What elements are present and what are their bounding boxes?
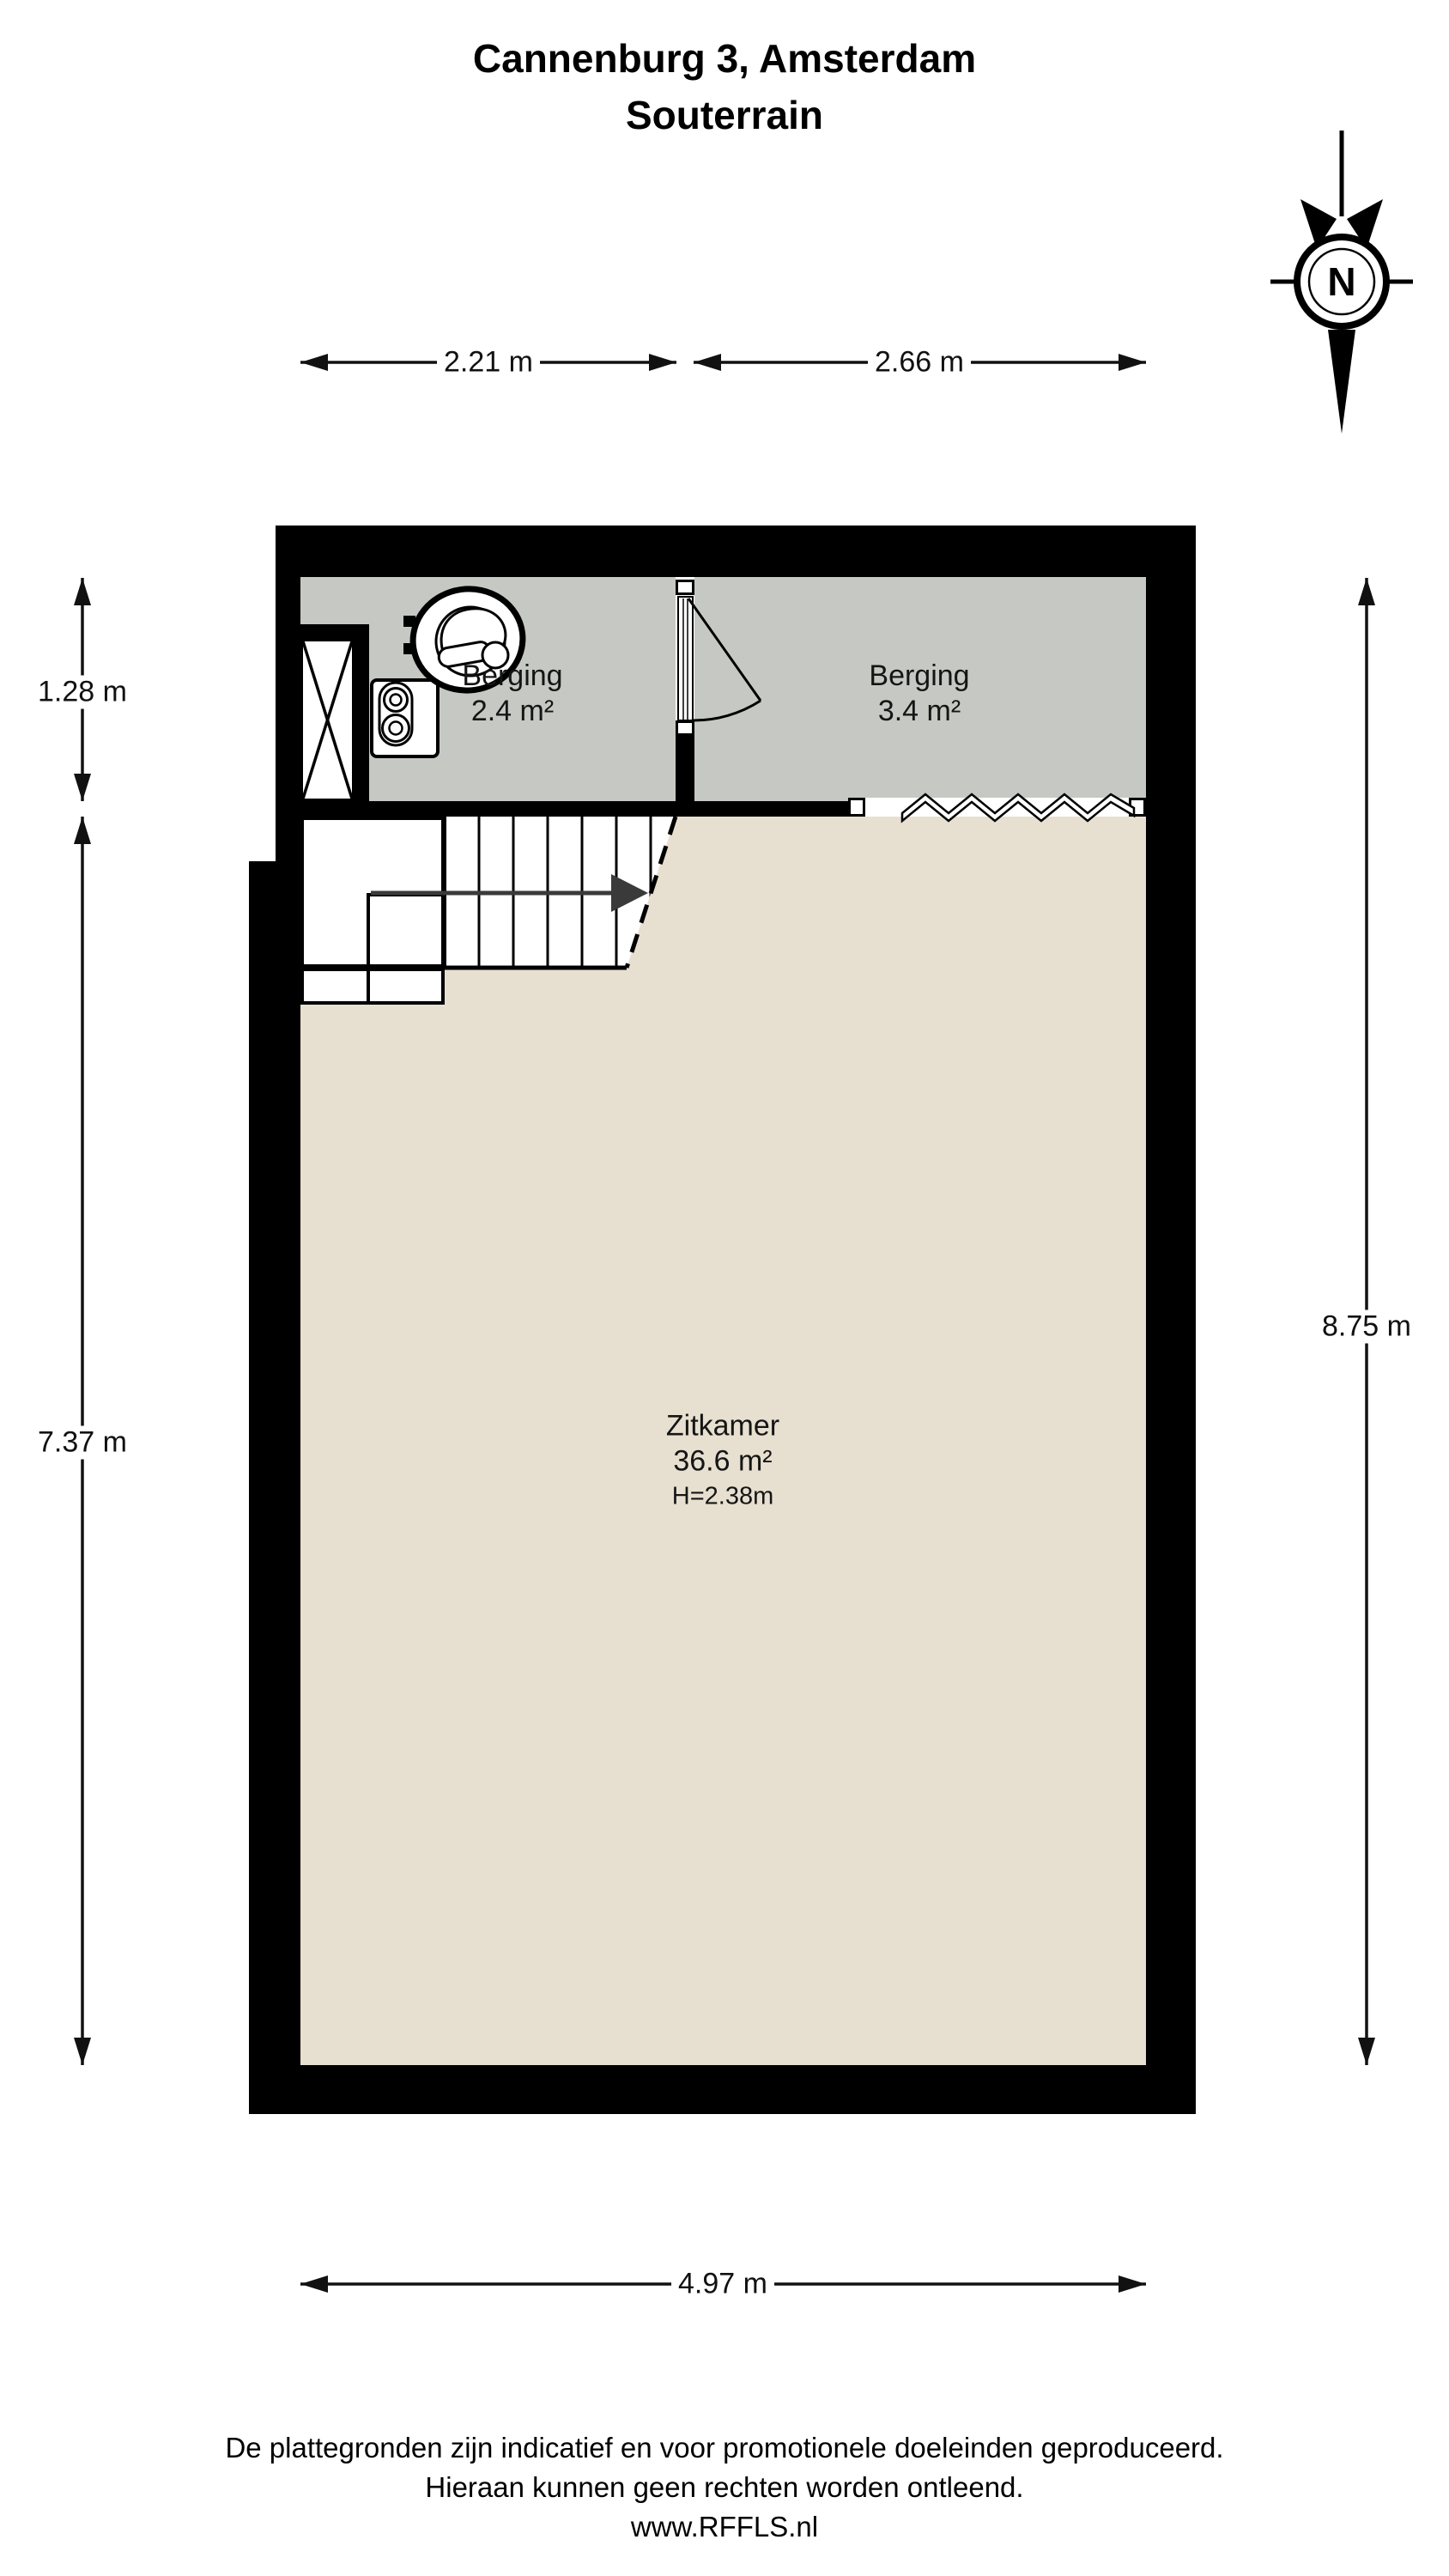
- room-name: Berging: [869, 659, 969, 694]
- dimension-lines: [74, 354, 1375, 2293]
- dim-label-left-upper: 1.28 m: [31, 676, 134, 709]
- dim-label-left-lower: 7.37 m: [31, 1426, 134, 1460]
- room-label-zitkamer: Zitkamer 36.6 m² H=2.38m: [666, 1409, 779, 1515]
- compass-n-label: N: [1327, 259, 1355, 304]
- room-area: 2.4 m²: [462, 694, 562, 729]
- page-title: Cannenburg 3, Amsterdam Souterrain: [0, 30, 1449, 143]
- door-swing: [678, 597, 761, 720]
- wall-break-zigzag: [902, 794, 1134, 821]
- room-area: 3.4 m²: [869, 694, 969, 729]
- dim-label-bottom: 4.97 m: [671, 2268, 774, 2301]
- boiler-icon: [372, 680, 438, 756]
- room-label-berging-right: Berging 3.4 m²: [869, 659, 969, 729]
- room-area: 36.6 m²: [666, 1444, 779, 1479]
- dim-label-top-right: 2.66 m: [868, 346, 971, 380]
- title-floor: Souterrain: [0, 87, 1449, 143]
- plan-linework: N: [0, 0, 1449, 2576]
- footer-line-2: Hieraan kunnen geen rechten worden ontle…: [0, 2468, 1449, 2507]
- title-address: Cannenburg 3, Amsterdam: [0, 30, 1449, 87]
- footer-disclaimer: De plattegronden zijn indicatief en voor…: [0, 2428, 1449, 2547]
- dim-label-top-left: 2.21 m: [437, 346, 540, 380]
- room-ceiling-height: H=2.38m: [666, 1479, 779, 1515]
- shaft-x-icon: [303, 641, 352, 799]
- compass-north-icon: N: [1270, 131, 1413, 434]
- footer-line-1: De plattegronden zijn indicatief en voor…: [0, 2428, 1449, 2468]
- footer-website: www.RFFLS.nl: [0, 2507, 1449, 2547]
- floorplan-page: Cannenburg 3, Amsterdam Souterrain: [0, 0, 1449, 2576]
- room-name: Berging: [462, 659, 562, 694]
- room-name: Zitkamer: [666, 1409, 779, 1444]
- room-label-berging-left: Berging 2.4 m²: [462, 659, 562, 729]
- dim-label-right: 8.75 m: [1315, 1310, 1418, 1344]
